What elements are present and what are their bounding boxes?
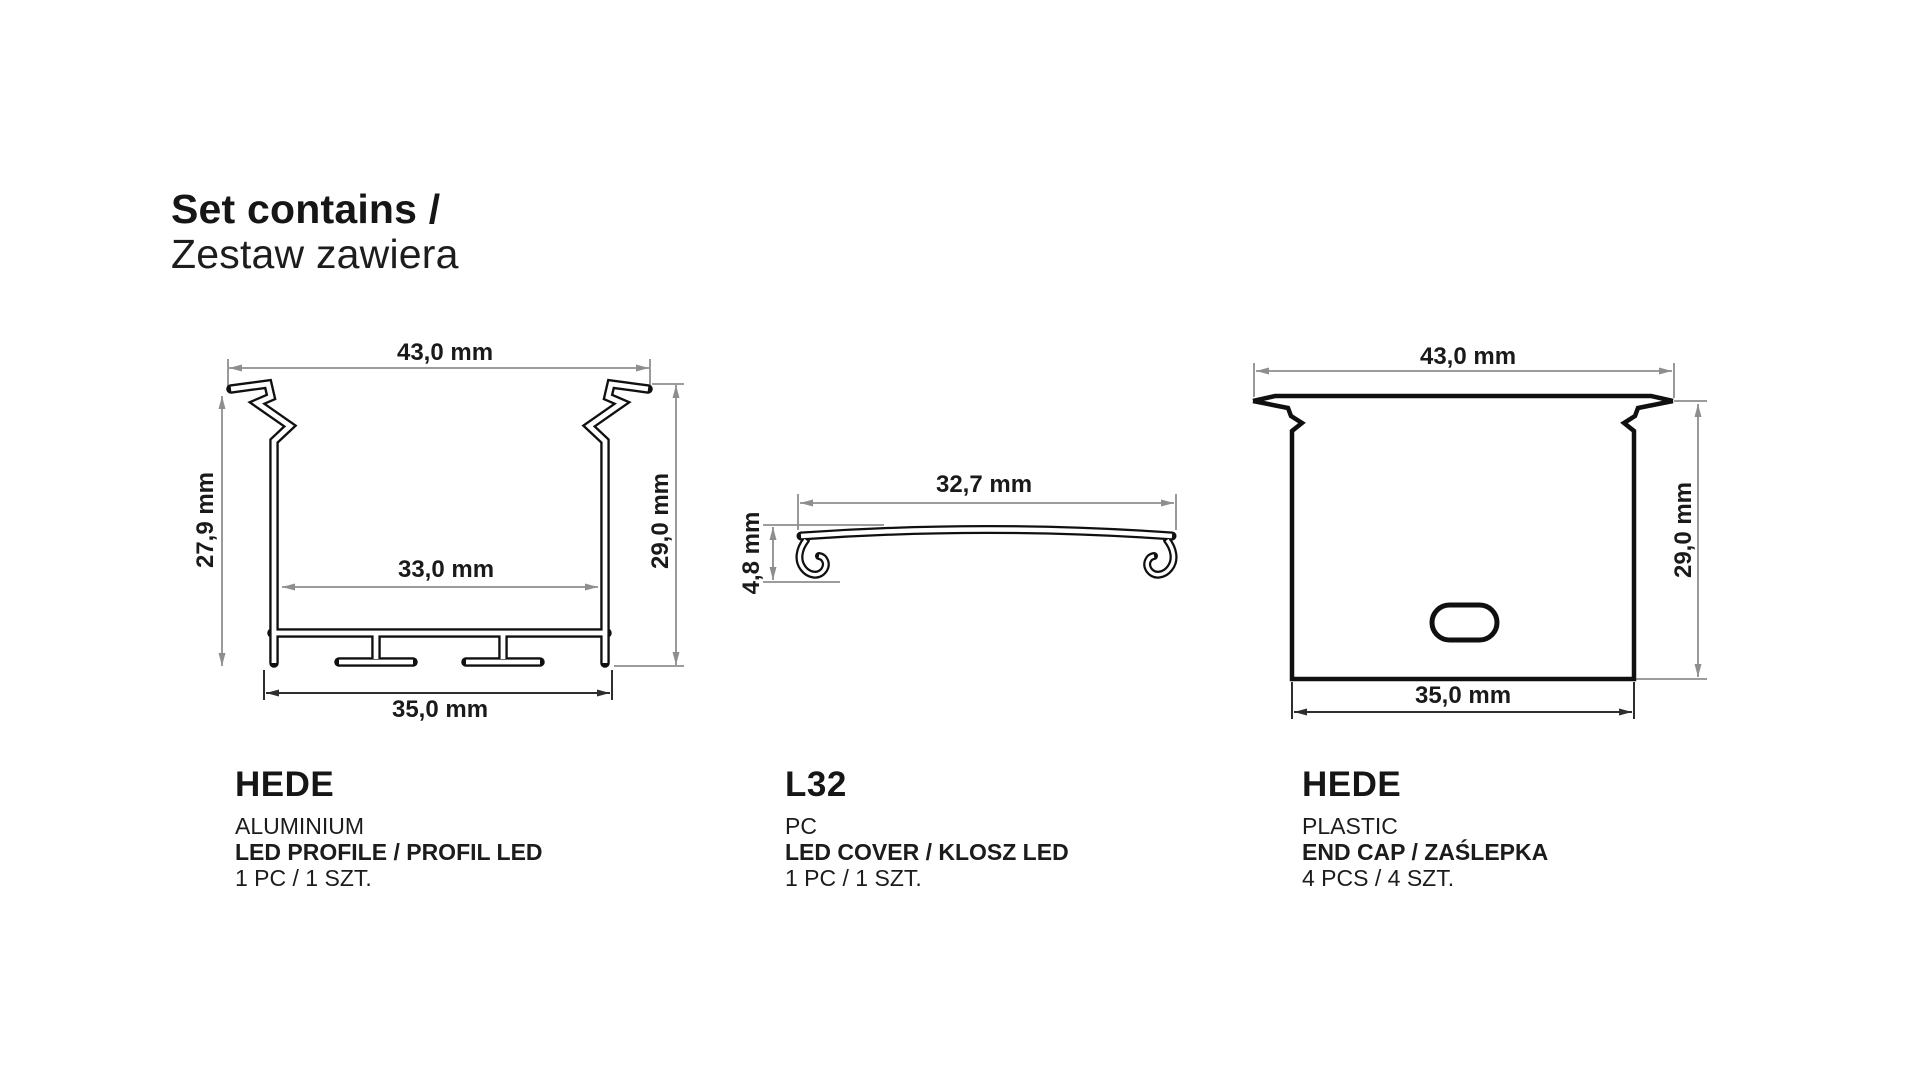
endcap-drawing bbox=[1240, 330, 1730, 730]
caption-cover: L32 PC LED COVER / KLOSZ LED 1 PC / 1 SZ… bbox=[785, 766, 1205, 891]
caption-endcap-type: END CAP / ZAŚLEPKA bbox=[1302, 839, 1722, 865]
profile-drawing bbox=[180, 330, 710, 730]
page-subtitle: Zestaw zawiera bbox=[171, 231, 459, 278]
page-title: Set contains / bbox=[171, 186, 440, 233]
endcap-slot bbox=[1432, 605, 1497, 640]
cover-hooks-core bbox=[799, 540, 1173, 575]
caption-cover-material: PC bbox=[785, 813, 1205, 839]
caption-endcap: HEDE PLASTIC END CAP / ZAŚLEPKA 4 PCS / … bbox=[1302, 766, 1722, 891]
profile-dim-right: 29,0 mm bbox=[647, 473, 675, 569]
caption-profile-material: ALUMINIUM bbox=[235, 813, 655, 839]
caption-cover-quantity: 1 PC / 1 SZT. bbox=[785, 865, 1205, 891]
endcap-dim-bottom: 35,0 mm bbox=[1415, 682, 1511, 710]
caption-endcap-material: PLASTIC bbox=[1302, 813, 1722, 839]
cover-dim-left: 4,8 mm bbox=[738, 512, 766, 595]
endcap-outline bbox=[1253, 396, 1673, 679]
caption-endcap-quantity: 4 PCS / 4 SZT. bbox=[1302, 865, 1722, 891]
caption-cover-type: LED COVER / KLOSZ LED bbox=[785, 839, 1205, 865]
page: { "title": { "line1": "Set contains /", … bbox=[0, 0, 1920, 1080]
caption-cover-name: L32 bbox=[785, 766, 1205, 804]
profile-outline-core bbox=[231, 384, 648, 663]
endcap-dim-right: 29,0 mm bbox=[1670, 482, 1698, 578]
profile-dim-top: 43,0 mm bbox=[397, 339, 493, 367]
endcap-dim-top: 43,0 mm bbox=[1420, 343, 1516, 371]
caption-profile-name: HEDE bbox=[235, 766, 655, 804]
caption-profile-type: LED PROFILE / PROFIL LED bbox=[235, 839, 655, 865]
caption-endcap-name: HEDE bbox=[1302, 766, 1722, 804]
cover-dim-top: 32,7 mm bbox=[936, 471, 1032, 499]
caption-profile: HEDE ALUMINIUM LED PROFILE / PROFIL LED … bbox=[235, 766, 655, 891]
profile-dim-left: 27,9 mm bbox=[192, 472, 220, 568]
profile-dim-inner: 33,0 mm bbox=[398, 556, 494, 584]
cover-hooks bbox=[799, 540, 1173, 575]
caption-profile-quantity: 1 PC / 1 SZT. bbox=[235, 865, 655, 891]
cover-dimension-arrows bbox=[770, 500, 1175, 581]
profile-dim-bottom: 35,0 mm bbox=[392, 696, 488, 724]
